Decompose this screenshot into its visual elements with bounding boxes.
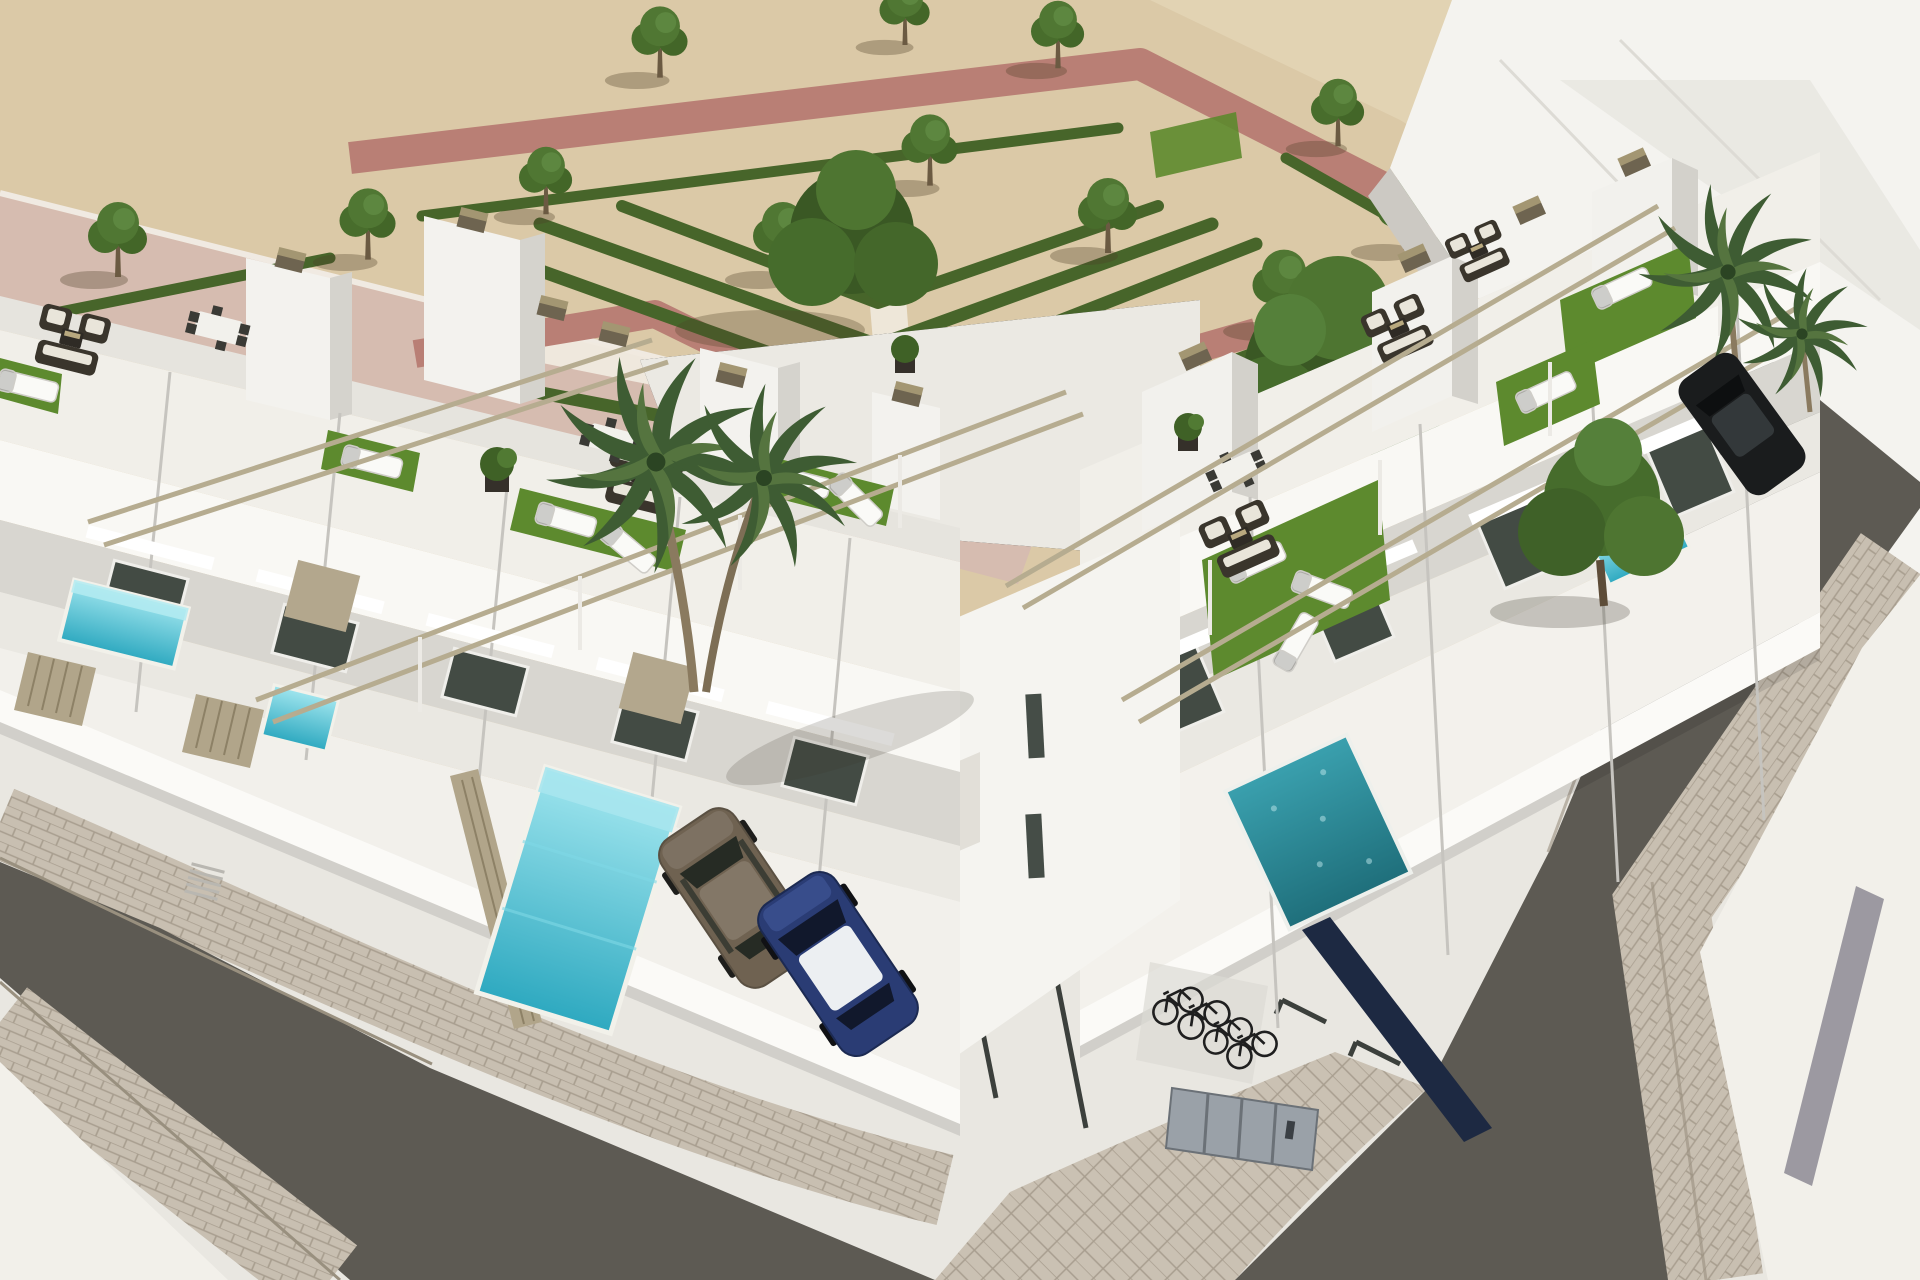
- roof-tower: [424, 216, 520, 404]
- window-slit: [1025, 694, 1044, 759]
- roof-tower: [246, 258, 330, 420]
- roof-tower-side: [330, 272, 352, 420]
- render-canvas: [0, 0, 1920, 1280]
- aerial-render: [0, 0, 1920, 1280]
- window-slit: [1025, 814, 1044, 879]
